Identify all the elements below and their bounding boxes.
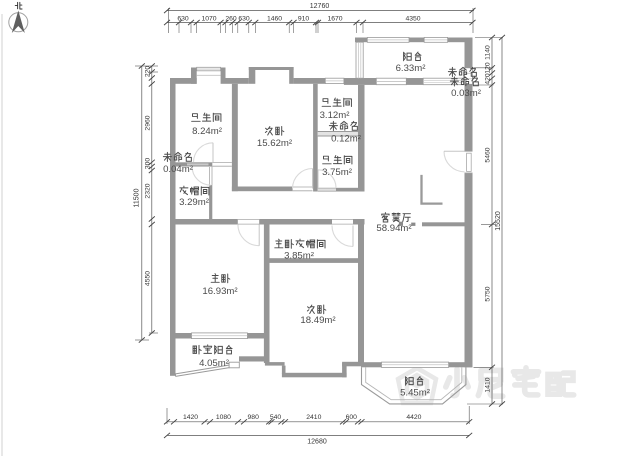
svg-text:4550: 4550 — [144, 271, 151, 286]
svg-text:2960: 2960 — [144, 115, 151, 130]
svg-text:540: 540 — [270, 414, 282, 421]
svg-text:220: 220 — [144, 66, 151, 78]
svg-text:2320: 2320 — [144, 183, 151, 198]
svg-text:3.75m²: 3.75m² — [322, 167, 353, 178]
svg-text:630: 630 — [238, 15, 250, 22]
svg-text:1410: 1410 — [484, 377, 491, 392]
svg-text:600: 600 — [346, 414, 358, 421]
svg-text:5750: 5750 — [484, 286, 491, 301]
svg-text:18.49m²: 18.49m² — [300, 315, 336, 326]
svg-text:0.12m²: 0.12m² — [331, 134, 362, 145]
svg-text:11500: 11500 — [133, 188, 140, 207]
svg-text:980: 980 — [248, 414, 260, 421]
svg-text:300: 300 — [144, 158, 151, 170]
svg-text:0.04m²: 0.04m² — [163, 164, 194, 175]
svg-text:1080: 1080 — [216, 414, 231, 421]
svg-text:1420: 1420 — [183, 414, 198, 421]
svg-text:3.29m²: 3.29m² — [179, 197, 210, 208]
svg-text:0.03m²: 0.03m² — [451, 88, 482, 99]
svg-text:58.94m²: 58.94m² — [376, 223, 412, 234]
svg-text:910: 910 — [298, 15, 310, 22]
svg-text:2410: 2410 — [306, 414, 321, 421]
svg-text:1460: 1460 — [267, 15, 282, 22]
svg-text:15.62m²: 15.62m² — [257, 138, 293, 149]
svg-text:6.33m²: 6.33m² — [396, 63, 427, 74]
svg-text:120: 120 — [484, 62, 491, 74]
svg-text:16.93m²: 16.93m² — [202, 286, 238, 297]
svg-text:5460: 5460 — [484, 147, 491, 162]
svg-text:630: 630 — [177, 15, 189, 22]
svg-text:4.05m²: 4.05m² — [199, 358, 230, 369]
svg-text:1140: 1140 — [484, 45, 491, 60]
svg-text:12760: 12760 — [310, 3, 330, 10]
svg-text:8.24m²: 8.24m² — [192, 126, 223, 137]
svg-text:1070: 1070 — [201, 15, 216, 22]
svg-text:3.12m²: 3.12m² — [320, 110, 351, 121]
svg-text:5.45m²: 5.45m² — [400, 388, 431, 399]
svg-text:4420: 4420 — [406, 414, 421, 421]
svg-text:260: 260 — [225, 15, 237, 22]
svg-text:1670: 1670 — [327, 15, 342, 22]
svg-text:4350: 4350 — [405, 15, 420, 22]
svg-text:15520: 15520 — [495, 211, 502, 231]
svg-text:12680: 12680 — [307, 438, 327, 445]
svg-text:3.85m²: 3.85m² — [284, 251, 315, 262]
svg-text:420: 420 — [484, 73, 491, 85]
